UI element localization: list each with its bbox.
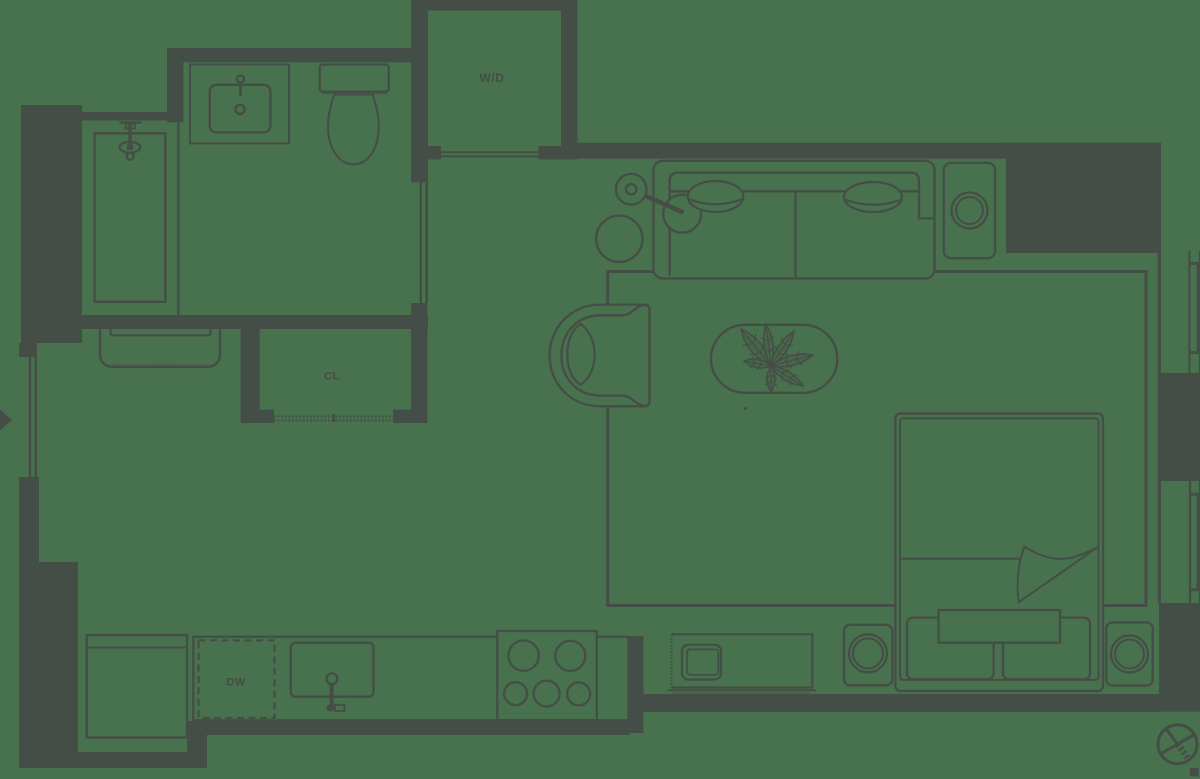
svg-text:DW: DW bbox=[226, 677, 245, 689]
svg-text:W/D: W/D bbox=[479, 71, 504, 85]
svg-text:CL: CL bbox=[324, 371, 340, 383]
